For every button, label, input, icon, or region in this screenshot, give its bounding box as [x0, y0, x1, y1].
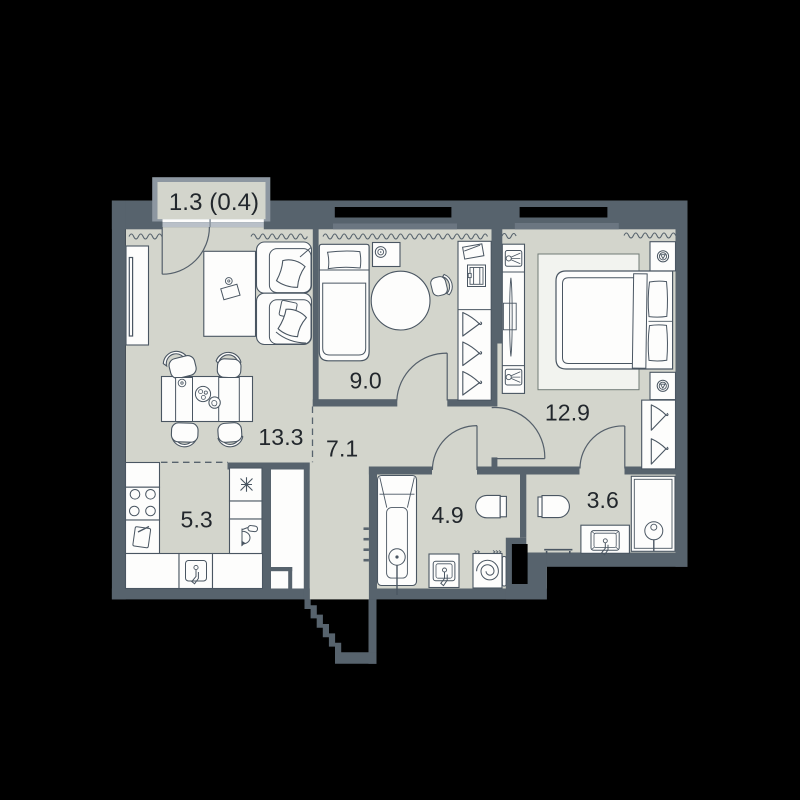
svg-text:13.3: 13.3 — [258, 424, 303, 450]
svg-text:5.3: 5.3 — [181, 506, 213, 532]
svg-text:3.6: 3.6 — [587, 487, 619, 513]
svg-text:1.3 (0.4): 1.3 (0.4) — [169, 189, 259, 216]
svg-text:7.1: 7.1 — [326, 435, 358, 461]
svg-text:4.9: 4.9 — [431, 502, 463, 528]
svg-text:12.9: 12.9 — [545, 399, 590, 425]
svg-text:9.0: 9.0 — [349, 367, 381, 393]
